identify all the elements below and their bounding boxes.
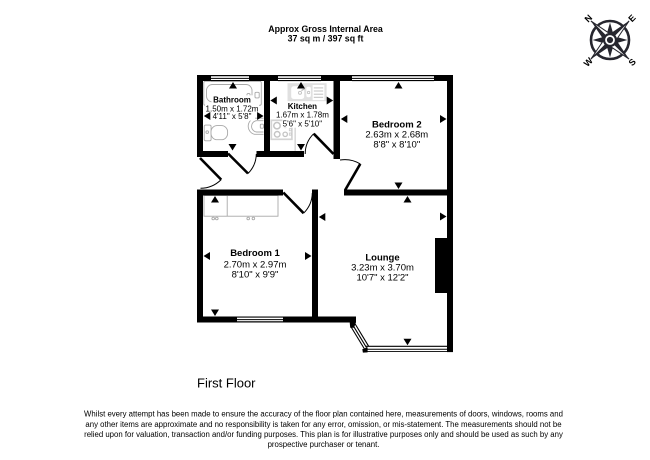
svg-text:Bedroom 2: Bedroom 2 <box>372 119 422 130</box>
svg-text:4'11" x 5'8": 4'11" x 5'8" <box>213 112 252 121</box>
svg-text:Bathroom: Bathroom <box>213 96 251 105</box>
svg-text:8'8" x 8'10": 8'8" x 8'10" <box>373 139 420 150</box>
svg-text:any other items are approximat: any other items are approximate and no r… <box>85 420 561 429</box>
svg-text:37 sq m / 397 sq ft: 37 sq m / 397 sq ft <box>288 33 364 43</box>
svg-text:First Floor: First Floor <box>197 375 256 390</box>
svg-text:10'7" x 12'2": 10'7" x 12'2" <box>356 273 408 284</box>
svg-text:5'6" x 5'10": 5'6" x 5'10" <box>283 119 323 128</box>
svg-text:relied upon for valuation, tra: relied upon for valuation, transaction a… <box>84 430 563 439</box>
svg-text:1.67m x 1.78m: 1.67m x 1.78m <box>276 111 329 120</box>
svg-text:S: S <box>627 57 638 68</box>
svg-text:3.23m x 3.70m: 3.23m x 3.70m <box>351 262 414 273</box>
svg-text:prospective purchaser or tenan: prospective purchaser or tenant. <box>268 440 380 449</box>
svg-text:Whilst every attempt has been: Whilst every attempt has been made to en… <box>84 410 563 419</box>
svg-text:8'10" x 9'9": 8'10" x 9'9" <box>232 270 279 281</box>
svg-text:Kitchen: Kitchen <box>288 102 317 111</box>
svg-text:Bedroom 1: Bedroom 1 <box>230 248 280 259</box>
